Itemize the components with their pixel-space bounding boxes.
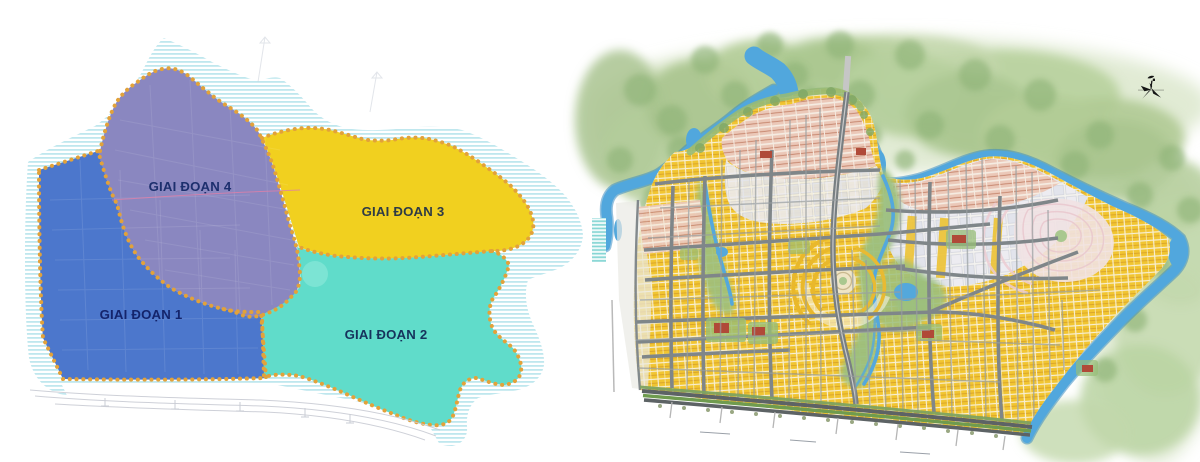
- svg-text:GIAI ĐOẠN 1: GIAI ĐOẠN 1: [100, 307, 183, 322]
- svg-text:GIAI ĐOẠN 2: GIAI ĐOẠN 2: [345, 327, 428, 342]
- svg-text:GIAI ĐOẠN 4: GIAI ĐOẠN 4: [149, 179, 232, 194]
- svg-text:GIAI ĐOẠN 3: GIAI ĐOẠN 3: [362, 204, 445, 219]
